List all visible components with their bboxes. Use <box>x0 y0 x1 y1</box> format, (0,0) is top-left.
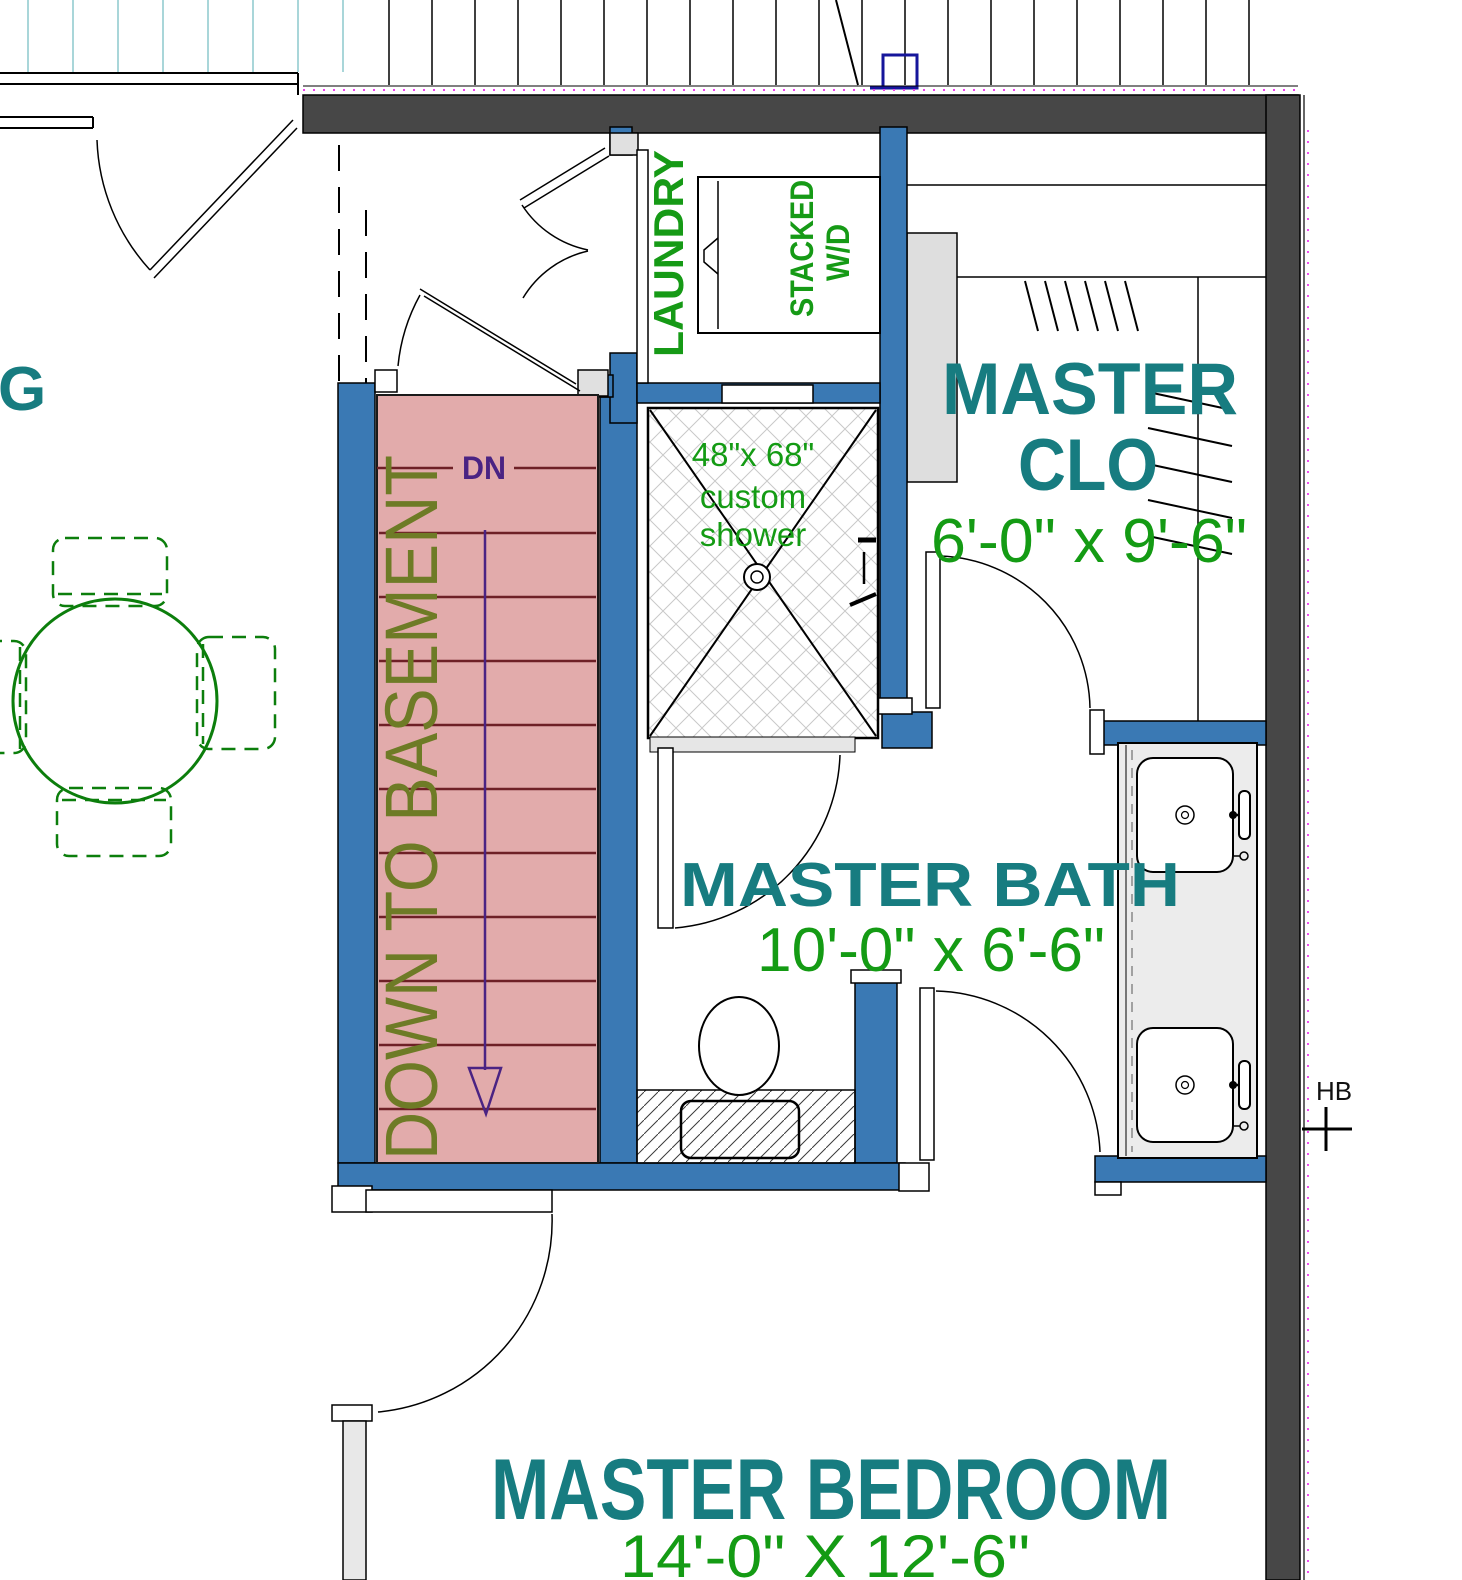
stacked-wd-label-line1: STACKED <box>784 180 820 317</box>
toilet-tank-icon <box>681 1101 799 1158</box>
bedroom-dims: 14'-0" X 12'-6" <box>620 1523 1030 1580</box>
wall-vanity-south <box>1095 1156 1266 1182</box>
hose-bib-label: HB <box>1316 1076 1352 1106</box>
vanity-sink-2 <box>1137 1028 1250 1142</box>
toilet-bowl-icon <box>699 997 779 1095</box>
floorplan-canvas: G LAUNDRY STACKED W/D MASTER CLO 6'-0" x… <box>0 0 1462 1580</box>
double-vanity <box>1118 743 1257 1158</box>
laundry-label: LAUNDRY <box>645 150 692 357</box>
stair-dn-label: DN <box>462 450 506 486</box>
bath-dims: 10'-0" x 6'-6" <box>757 916 1105 985</box>
closet-name-line1: MASTER <box>942 349 1238 430</box>
shower-curb <box>650 737 855 752</box>
floorplan-drawing: G LAUNDRY STACKED W/D MASTER CLO 6'-0" x… <box>0 0 1462 1580</box>
stacked-wd-label-line2: W/D <box>820 224 856 281</box>
wall-hall-cross-v <box>610 353 637 423</box>
wall-stair-east <box>600 397 637 1163</box>
dining-partial-label: G <box>0 355 46 424</box>
bath-name: MASTER BATH <box>680 851 1180 920</box>
wall-laundry-closet <box>880 127 907 712</box>
wall-bath-stub <box>855 982 897 1163</box>
wall-bedroom-north <box>338 1163 905 1190</box>
shower-niche <box>722 385 813 403</box>
shower-note-line3: shower <box>700 516 806 553</box>
bedroom-west-wall <box>343 1421 366 1580</box>
wall-closet-door-post <box>882 712 932 748</box>
shower-drain-icon <box>744 564 770 590</box>
shower-note-line1: 48"x 68" <box>692 436 815 473</box>
shower-door-leaf <box>658 748 673 928</box>
stair-note-label: DOWN TO BASEMENT <box>370 455 453 1160</box>
closet-dims: 6'-0" x 9'-6" <box>931 507 1247 576</box>
wall-closet-bath <box>1102 721 1266 745</box>
closet-name-line2: CLO <box>1018 425 1158 506</box>
shower-note-line2: custom <box>700 478 806 515</box>
